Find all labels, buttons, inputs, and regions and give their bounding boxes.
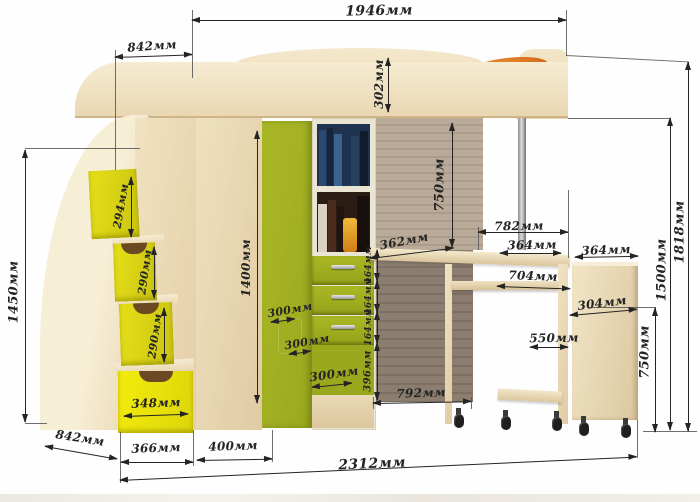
book [334,134,342,186]
dim-line [655,308,656,432]
dim-line [688,62,689,431]
caster-wheel [578,416,590,437]
dim-line [121,462,193,463]
dim-label-step-drawer: 348мм [131,395,181,411]
extension-line [566,55,689,62]
dim-line [197,459,272,462]
dim-line [452,123,453,247]
dim-line [670,118,671,430]
drawer-column-base [312,395,374,428]
dim-line [192,20,566,21]
dim-line [377,281,378,312]
underbed-back-panel-upper [376,118,483,250]
dim-line [530,347,568,348]
book [319,130,326,186]
book [327,128,333,186]
dim-label-desk-span: 782мм [494,219,544,234]
drawer-handle [331,325,355,329]
extension-line [25,148,140,149]
drawer-handle [331,295,355,299]
dim-label-bed-length: 1946мм [345,2,413,19]
dim-label-under-drawers: 396мм [363,350,374,391]
dim-line [25,150,26,422]
dim-label-bottom-depth: 842мм [55,427,106,449]
extension-line [25,423,47,424]
book [357,196,369,252]
dim-label-desk-height: 750мм [638,325,653,378]
finger-notch [139,371,173,382]
bookshelf-lower-compartment [317,192,370,252]
juice-box [343,218,357,252]
dim-label-wardrobe-height: 1400мм [239,239,253,297]
dim-label-top-depth: 842мм [127,37,177,54]
book [360,131,368,186]
mobile-desk-left-wall [445,264,452,424]
book [318,204,327,252]
underbed-back-panel-lower [376,250,473,402]
dim-label-drawer-3: 164мм [364,308,374,345]
extension-line [120,432,121,483]
dim-line [131,177,132,237]
dim-label-bed-height: 1500мм [655,239,670,302]
dim-line [45,446,117,460]
wardrobe-door [262,121,312,428]
dim-label-bottom-w1: 366мм [131,440,181,456]
dim-label-bottom-w2: 400мм [208,438,258,454]
drawer-handle [331,265,355,269]
rolling-cabinet [572,262,638,420]
dim-label-cabinet-top: 364мм [581,242,631,258]
book [328,200,336,252]
caster-wheel [551,411,563,432]
furniture-dimension-diagram: 1946мм 842мм 302мм 1450мм 294мм 290мм 29… [0,0,700,502]
dim-label-total-height: 1818мм [673,201,688,264]
extension-line [568,190,569,258]
dim-label-stairs-height: 1450мм [7,261,22,324]
dim-line [115,54,192,58]
extension-line [568,118,671,119]
bed-front-rail [75,62,568,118]
book [351,136,359,186]
dim-line [500,253,561,254]
dim-label-rail-height: 302мм [372,59,386,108]
dim-label-underdesk-width: 792мм [396,385,446,401]
dim-label-total-width: 2312мм [338,455,406,474]
extension-line [115,50,116,170]
dim-label-mobile-inner: 550мм [529,331,579,346]
dim-line [388,58,389,112]
dim-label-desk-overhang: 364мм [507,238,557,253]
dim-line [377,343,378,400]
caster-wheel [500,410,512,431]
dim-line [257,131,258,403]
caster-wheel [620,418,632,439]
dim-label-underbed-height: 750мм [433,158,448,211]
bookshelf-top-compartment [317,124,370,186]
dim-label-mobile-width: 704мм [508,268,558,284]
dim-line [373,401,471,404]
dim-line [154,247,155,298]
caster-wheel [453,408,465,429]
keyboard-tray [498,388,562,402]
photo-bottom-edge [0,494,700,502]
book [343,129,350,186]
dim-line [377,312,378,343]
